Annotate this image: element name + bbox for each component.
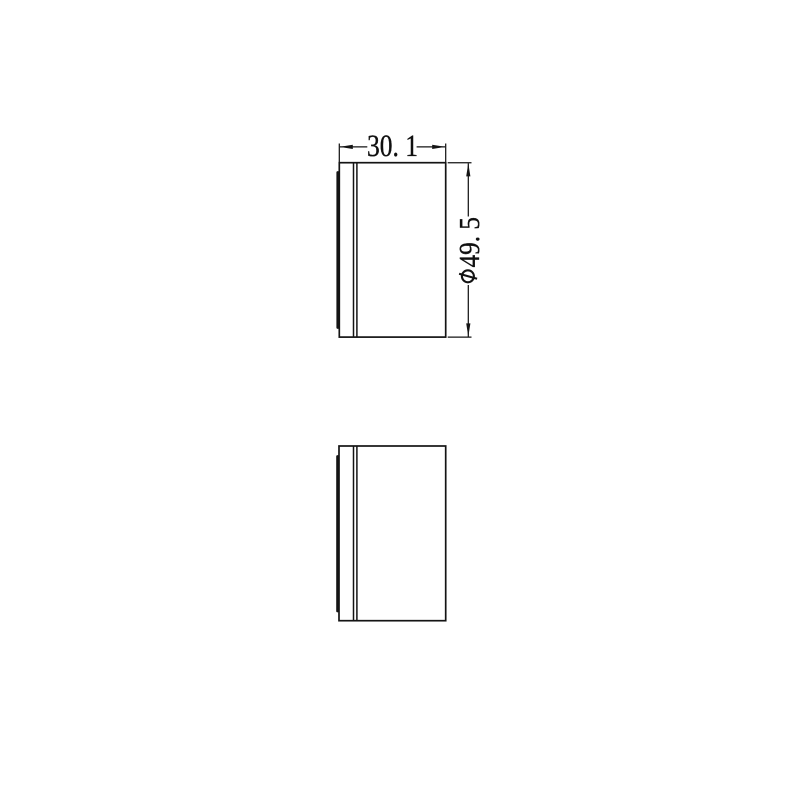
svg-text:49. 5: 49. 5 (454, 217, 486, 268)
svg-text:30. 1: 30. 1 (367, 128, 418, 163)
